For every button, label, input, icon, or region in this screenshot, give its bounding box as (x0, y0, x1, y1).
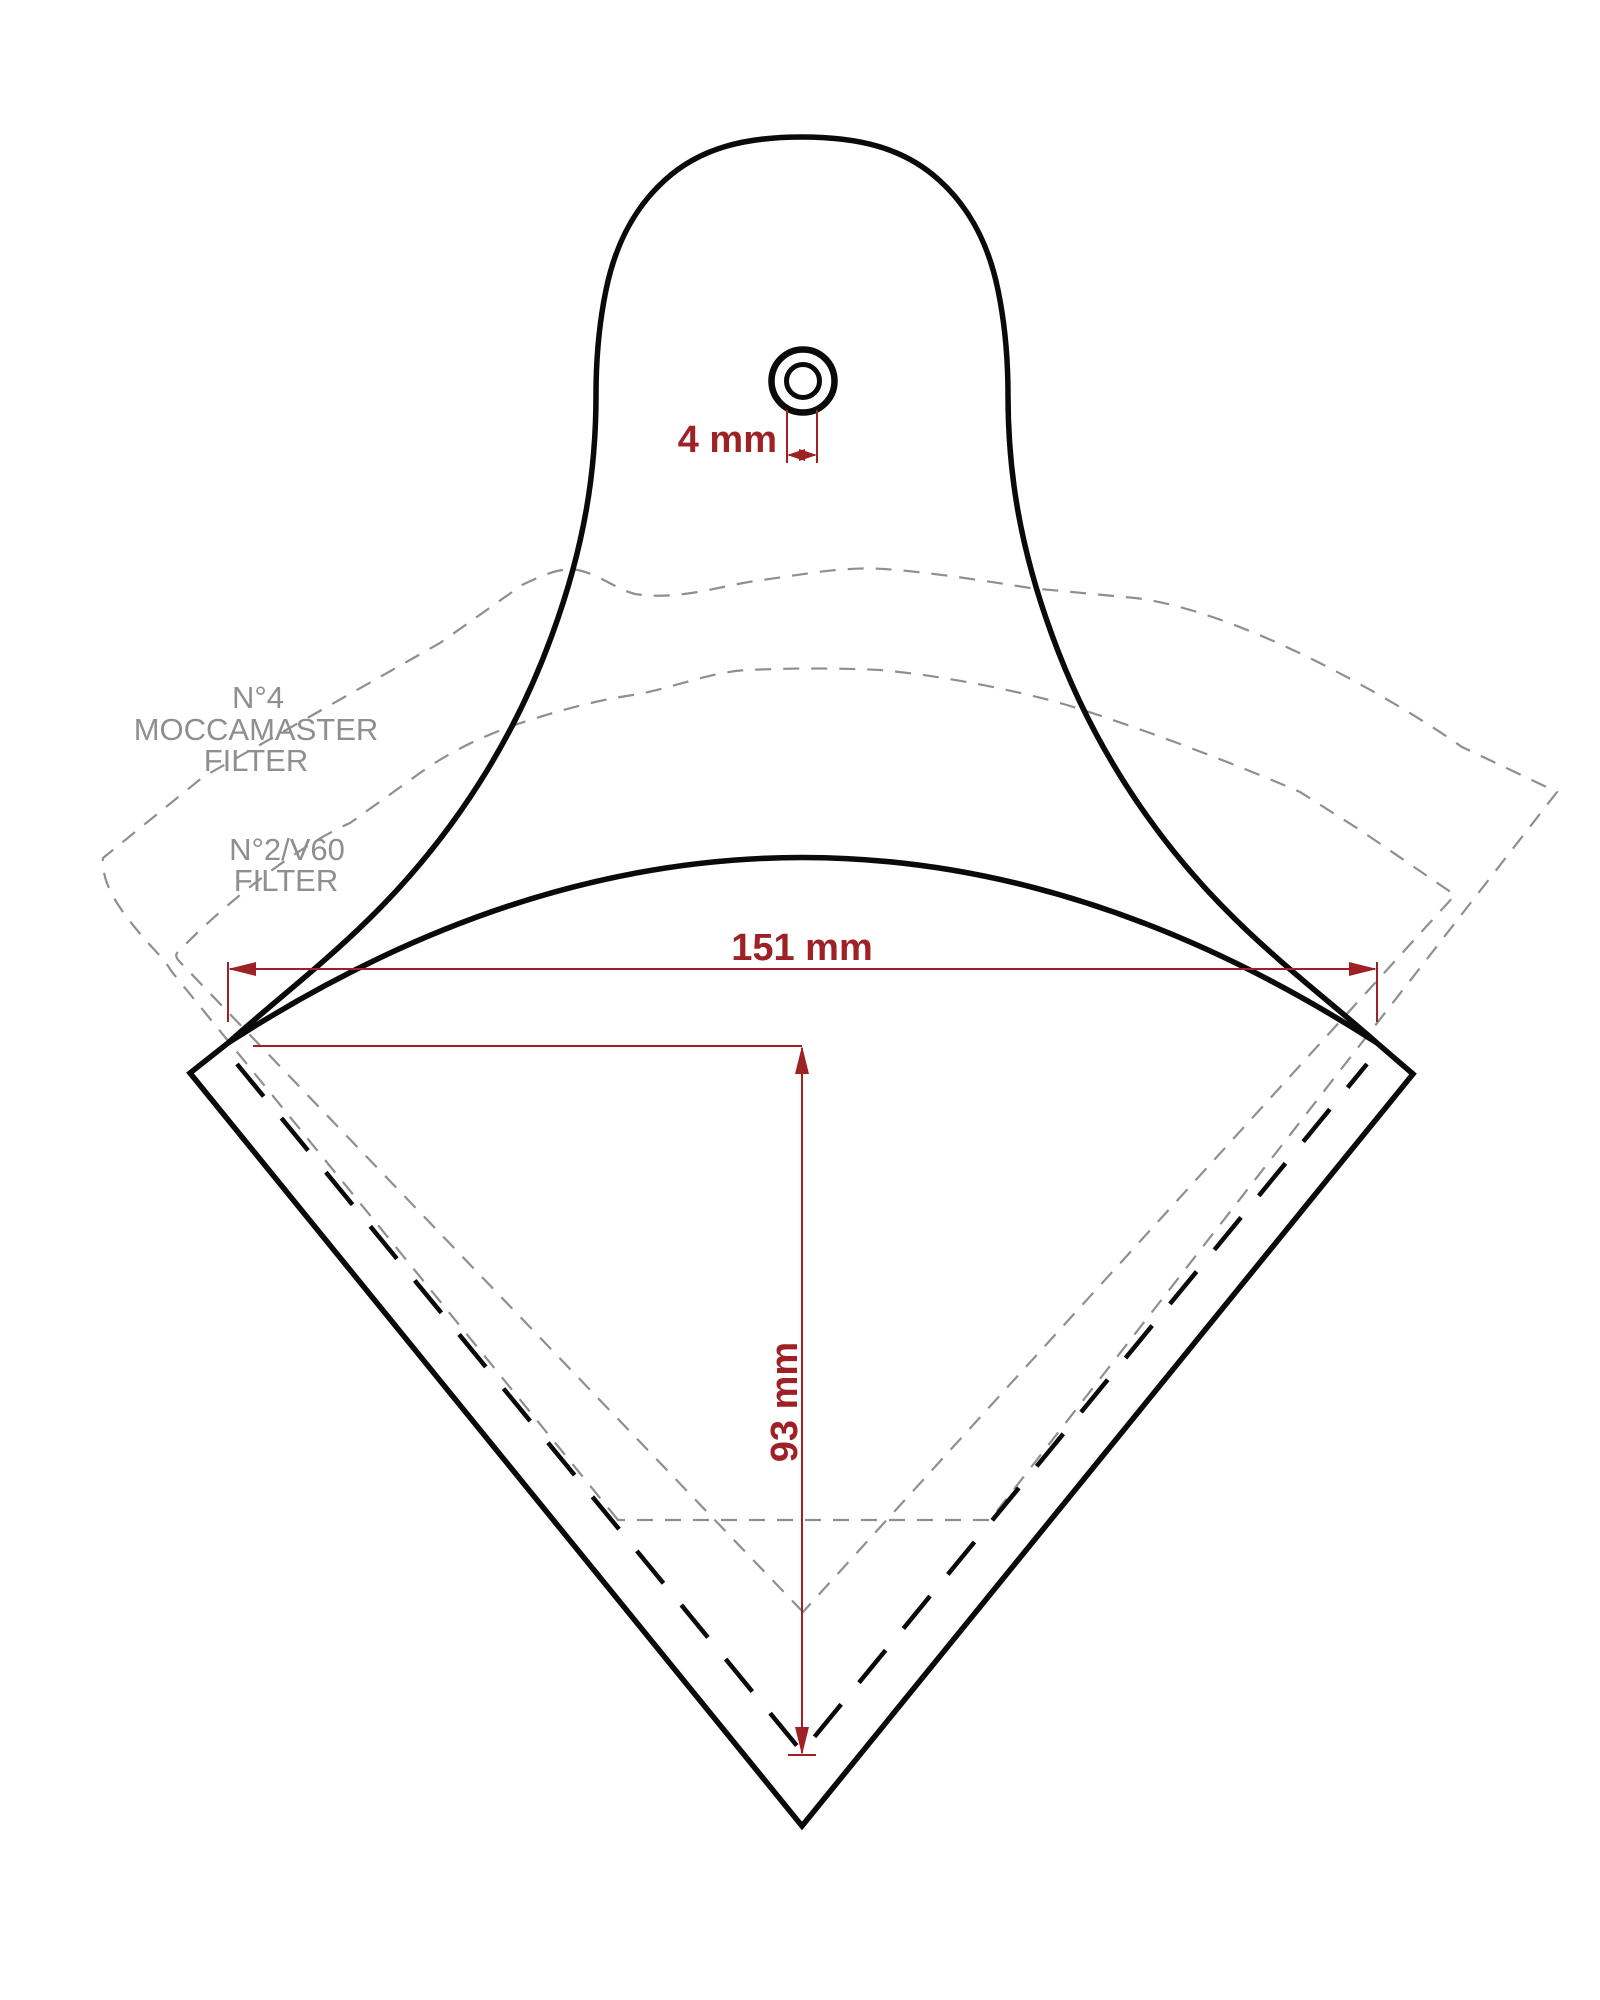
moccamaster-label-line1: N°4 (232, 680, 284, 715)
arrowhead-right-icon (799, 449, 817, 461)
diagram-canvas: 4 mm 151 mm 93 mm N°4 MOCCAMASTER FILTER… (0, 0, 1600, 2000)
moccamaster-label-line2: MOCCAMASTER (134, 712, 379, 747)
arrowhead-right-icon (1349, 962, 1377, 976)
top-width-label: 151 mm (731, 927, 873, 969)
moccamaster-label-line3: FILTER (204, 743, 309, 778)
moccamaster-label: N°4 MOCCAMASTER FILTER (134, 680, 379, 778)
v60-filter-outline (176, 669, 1455, 1613)
hole-diameter-label: 4 mm (678, 419, 777, 461)
dimension-width (228, 962, 1377, 1022)
v60-label-line2: FILTER (234, 863, 339, 898)
arrowhead-up-icon (795, 1046, 809, 1074)
v60-label-line1: N°2/V60 (229, 832, 345, 867)
arrowhead-down-icon (795, 1727, 809, 1755)
dimension-depth (253, 1046, 816, 1755)
grommet-outer-ring (772, 350, 835, 413)
v60-label: N°2/V60 FILTER (229, 832, 345, 898)
filter-template-diagram: 4 mm 151 mm 93 mm N°4 MOCCAMASTER FILTER… (0, 0, 1600, 2000)
grommet-inner-ring (787, 365, 820, 398)
pocket-depth-label: 93 mm (764, 1342, 806, 1462)
arrowhead-left-icon (228, 962, 256, 976)
dimension-hole (787, 410, 817, 463)
